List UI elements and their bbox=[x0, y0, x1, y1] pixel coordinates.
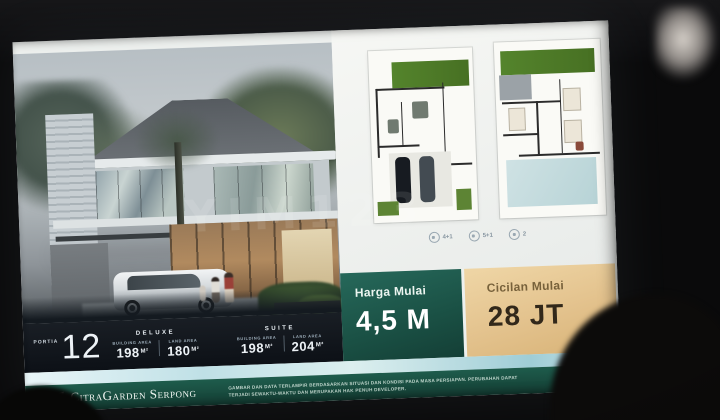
plan-pool-deck bbox=[507, 157, 598, 208]
upper-window-glass bbox=[95, 168, 185, 219]
projection-slide: PORTIA 12 DELUXE BUILDING AREA 198M² LAN… bbox=[12, 20, 621, 412]
plan-roof-patch bbox=[499, 75, 532, 101]
spec-land-area: LAND AREA 180M² bbox=[160, 337, 207, 358]
price-label: Harga Mulai bbox=[355, 282, 462, 300]
bed-icon bbox=[428, 232, 439, 243]
plan-furniture bbox=[576, 141, 584, 150]
plan-wall bbox=[376, 86, 445, 91]
installment-label: Cicilan Mulai bbox=[487, 276, 616, 295]
plan-garden bbox=[391, 60, 469, 89]
plan-garden bbox=[500, 48, 594, 76]
legend-carport: 2 bbox=[509, 229, 527, 241]
house-render bbox=[13, 43, 342, 325]
series-label: PORTIA bbox=[33, 338, 58, 345]
variant-name: SUITE bbox=[265, 325, 295, 332]
plan-bed bbox=[563, 89, 580, 111]
spec-building-area: BUILDING AREA 198M² bbox=[105, 339, 159, 360]
price-box: Harga Mulai 4,5 M bbox=[340, 269, 464, 361]
variant-deluxe: DELUXE BUILDING AREA 198M² LAND AREA 180… bbox=[93, 327, 218, 360]
bath-icon bbox=[468, 230, 479, 241]
photo-watermark: YIM123 bbox=[184, 183, 430, 243]
sofa bbox=[387, 119, 399, 133]
brand-name: CitraGarden Serpong bbox=[70, 385, 197, 406]
spec-land-area: LAND AREA 204M² bbox=[284, 332, 331, 353]
plan-wall bbox=[559, 79, 563, 153]
plan-wall bbox=[502, 100, 560, 105]
plan-wall bbox=[503, 133, 538, 136]
plan-garden bbox=[456, 189, 471, 210]
photo-of-presentation-screen: PORTIA 12 DELUXE BUILDING AREA 198M² LAN… bbox=[0, 0, 720, 420]
disclaimer-text: Gambar dan data terlampir berdasarkan si… bbox=[228, 373, 528, 398]
plan-wall bbox=[519, 151, 600, 156]
plan-wall bbox=[536, 101, 539, 154]
legend-bedrooms: 4+1 bbox=[428, 231, 453, 243]
floorplan-upper-floor bbox=[494, 39, 606, 219]
car-icon bbox=[509, 229, 520, 240]
dining-table bbox=[411, 101, 428, 119]
out-of-focus-light-blob bbox=[655, 6, 717, 80]
plan-bed bbox=[565, 120, 582, 142]
product-series: PORTIA 12 bbox=[23, 327, 94, 368]
price-value: 4,5 M bbox=[355, 302, 463, 338]
variant-suite: SUITE BUILDING AREA 198M² LAND AREA 204M… bbox=[218, 323, 343, 356]
legend-bathrooms: 5+1 bbox=[468, 230, 493, 242]
plan-bed bbox=[509, 108, 525, 130]
spec-building-area: BUILDING AREA 198M² bbox=[230, 334, 284, 355]
plan-wall bbox=[401, 102, 404, 147]
variant-name: DELUXE bbox=[136, 329, 176, 336]
plan-wall bbox=[378, 144, 420, 148]
